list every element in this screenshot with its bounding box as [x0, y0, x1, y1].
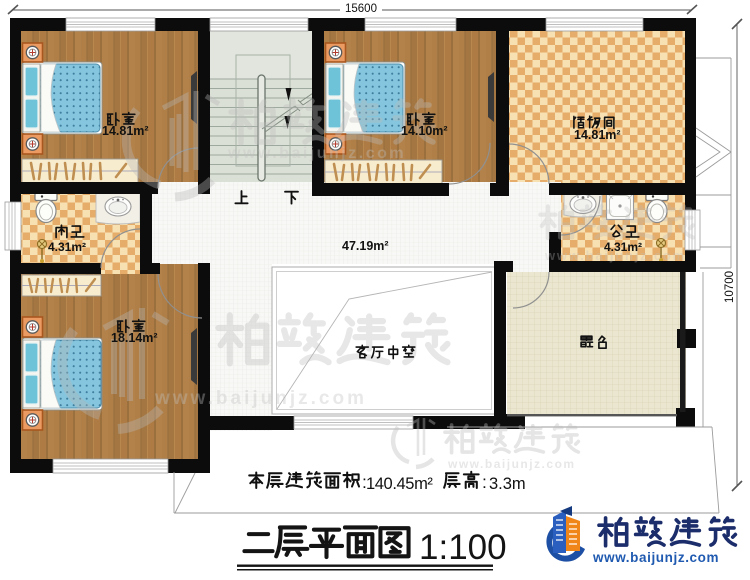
svg-text:140.45m²: 140.45m² [366, 475, 433, 493]
svg-text:www.baijunjz.com: www.baijunjz.com [154, 388, 367, 409]
svg-text:3.3m: 3.3m [489, 475, 526, 493]
svg-text:4.31m²: 4.31m² [48, 240, 86, 254]
svg-text:15600: 15600 [345, 3, 377, 15]
svg-text:18.14m²: 18.14m² [111, 331, 158, 345]
svg-text:47.19m²: 47.19m² [342, 239, 389, 253]
svg-text:14.81m²: 14.81m² [574, 128, 621, 142]
svg-text::: : [482, 472, 487, 492]
svg-text:10700: 10700 [724, 271, 736, 303]
svg-text:14.81m²: 14.81m² [102, 124, 149, 138]
svg-text:1:100: 1:100 [419, 528, 507, 567]
svg-text:www.baijunjz.com: www.baijunjz.com [592, 550, 719, 565]
svg-text:www.baijunjz.com: www.baijunjz.com [227, 145, 406, 162]
svg-text:4.31m²: 4.31m² [604, 240, 642, 254]
svg-text:www.baijunjz.com: www.baijunjz.com [447, 457, 576, 471]
svg-text:14.10m²: 14.10m² [401, 124, 448, 138]
